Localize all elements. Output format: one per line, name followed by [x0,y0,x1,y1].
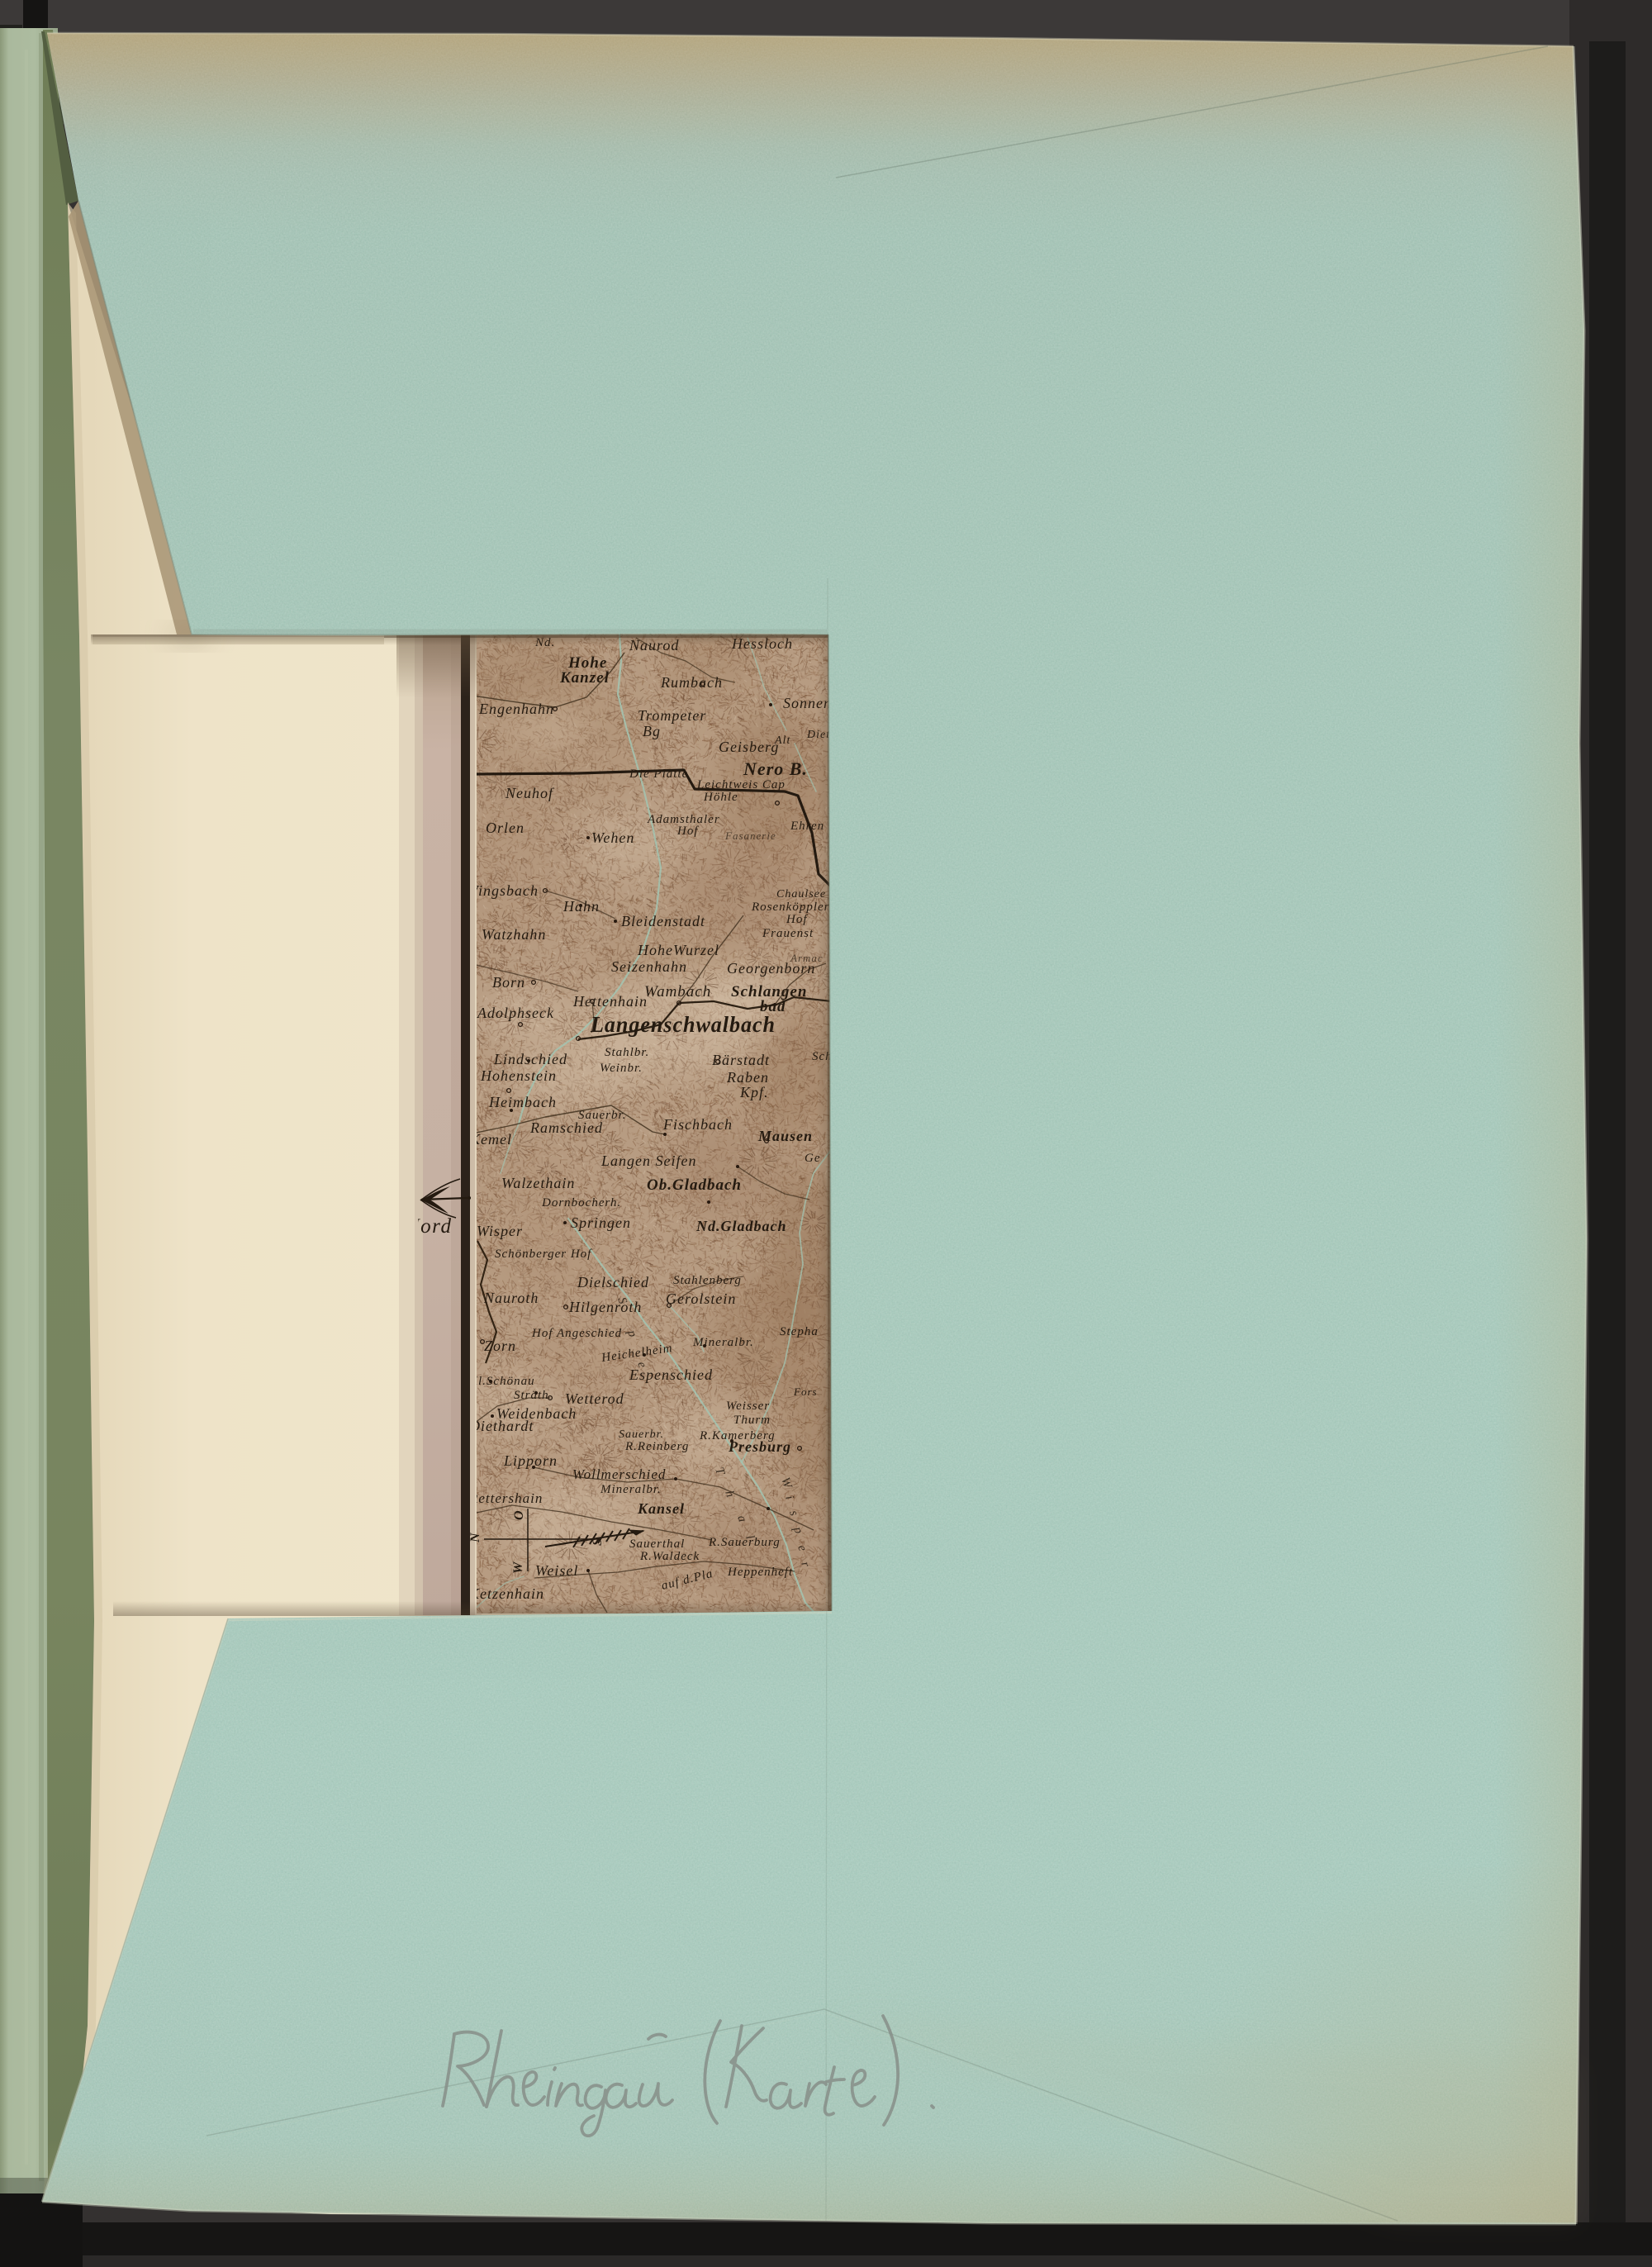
svg-text:Ketzenhain: Ketzenhain [468,1585,544,1602]
svg-text:Fischbach: Fischbach [662,1116,733,1133]
svg-text:Bleidenstadt: Bleidenstadt [621,913,705,929]
svg-text:Nauroth: Nauroth [483,1290,539,1306]
svg-text:Hof Angeschied: Hof Angeschied [531,1327,622,1340]
svg-text:Raben: Raben [726,1069,769,1086]
svg-text:R.Waldeck: R.Waldeck [639,1550,700,1563]
svg-text:Hilgenroth: Hilgenroth [568,1299,642,1315]
svg-text:R.Reinberg: R.Reinberg [624,1440,689,1453]
svg-text:Nero B.: Nero B. [743,758,808,779]
svg-text:Neuhof: Neuhof [505,785,555,801]
svg-text:Heimbach: Heimbach [488,1094,557,1110]
svg-text:Stepha: Stepha [780,1325,819,1338]
svg-text:Kpf.: Kpf. [739,1084,769,1100]
svg-text:N: N [468,1532,482,1543]
svg-text:Mineralbr.: Mineralbr. [692,1336,754,1349]
svg-text:Sauerbr.: Sauerbr. [619,1428,664,1441]
svg-text:Seizenhahn: Seizenhahn [611,958,687,975]
svg-text:Nd.Gladbach: Nd.Gladbach [695,1218,787,1234]
svg-text:Mineralbr.: Mineralbr. [600,1483,662,1496]
svg-text:Wehen: Wehen [591,829,634,846]
svg-text:Die Platte: Die Platte [629,768,688,781]
svg-text:Kl.Schönau: Kl.Schönau [468,1375,535,1388]
svg-text:Adolphseck: Adolphseck [477,1005,554,1021]
svg-text:Fors: Fors [793,1385,818,1398]
svg-text:Sträth: Sträth [514,1389,549,1402]
svg-text:Hof: Hof [786,913,808,926]
svg-text:Alt: Alt [774,734,790,747]
svg-text:Wisper: Wisper [477,1223,523,1239]
svg-text:Weisel: Weisel [535,1562,578,1579]
svg-text:Rumbach: Rumbach [660,674,723,691]
svg-text:Dielschied: Dielschied [577,1274,649,1290]
svg-text:Frauenst: Frauenst [762,927,814,940]
svg-text:HoheWurzel: HoheWurzel [637,942,719,958]
svg-text:Leichtweis Cap: Leichtweis Cap [696,778,786,791]
svg-text:Engenhahn: Engenhahn [478,701,554,717]
svg-text:Hohenstein: Hohenstein [480,1067,557,1084]
svg-text:Walzethain: Walzethain [501,1175,575,1191]
svg-text:Espenschied: Espenschied [629,1366,713,1383]
svg-text:Stahlbr.: Stahlbr. [605,1046,649,1059]
svg-text:Ob.Gladbach: Ob.Gladbach [647,1176,742,1194]
svg-text:Hettenhain: Hettenhain [572,993,648,1010]
svg-text:Schönberger Hof: Schönberger Hof [495,1248,592,1261]
svg-text:Bg: Bg [643,723,661,739]
svg-text:Presburg: Presburg [728,1438,791,1455]
svg-text:Kanzel: Kanzel [559,669,610,687]
svg-text:Hof: Hof [676,825,699,838]
svg-text:Orlen: Orlen [486,820,525,836]
svg-text:Mausen: Mausen [757,1128,813,1144]
svg-text:Höhle: Höhle [703,791,738,804]
svg-text:Langen Seifen: Langen Seifen [601,1153,696,1169]
svg-text:Lipporn: Lipporn [503,1452,558,1469]
svg-text:W: W [511,1561,525,1574]
svg-text:Trompeter: Trompeter [638,707,706,724]
svg-text:Zorn: Zorn [484,1338,516,1354]
svg-text:Watzhahn: Watzhahn [482,926,546,943]
svg-text:Bärstadt: Bärstadt [712,1052,770,1068]
svg-text:Dornbocherh.: Dornbocherh. [541,1196,621,1210]
svg-text:Weisser: Weisser [726,1400,770,1413]
svg-text:Rettershain: Rettershain [468,1490,543,1506]
svg-text:Lindschied: Lindschied [493,1051,567,1067]
svg-text:Hahn: Hahn [563,898,600,915]
svg-text:Langenschwalbach: Langenschwalbach [590,1012,776,1037]
svg-text:Wollmerschied: Wollmerschied [572,1466,666,1482]
svg-text:Kansel: Kansel [637,1500,685,1517]
svg-text:Diethardt: Diethardt [468,1418,534,1434]
svg-text:Stahlenberg: Stahlenberg [673,1274,742,1287]
svg-text:Springen: Springen [571,1214,631,1231]
svg-text:Geisberg: Geisberg [719,739,779,755]
svg-text:Thurm: Thurm [733,1414,771,1427]
svg-text:Born: Born [492,974,525,991]
svg-text:Heppenheft: Heppenheft [727,1566,793,1579]
svg-text:Sauerthal: Sauerthal [629,1537,685,1551]
svg-text:S: S [591,1538,605,1546]
svg-text:O: O [512,1510,526,1520]
svg-text:Ramschied: Ramschied [529,1119,603,1136]
svg-text:Gerolstein: Gerolstein [666,1290,736,1307]
svg-text:Fasanerie: Fasanerie [724,829,776,842]
svg-text:Weinbr.: Weinbr. [600,1062,643,1075]
svg-text:Wambach: Wambach [644,983,711,1000]
svg-text:Wetterod: Wetterod [565,1390,624,1407]
svg-text:Wingsbach: Wingsbach [466,882,539,899]
